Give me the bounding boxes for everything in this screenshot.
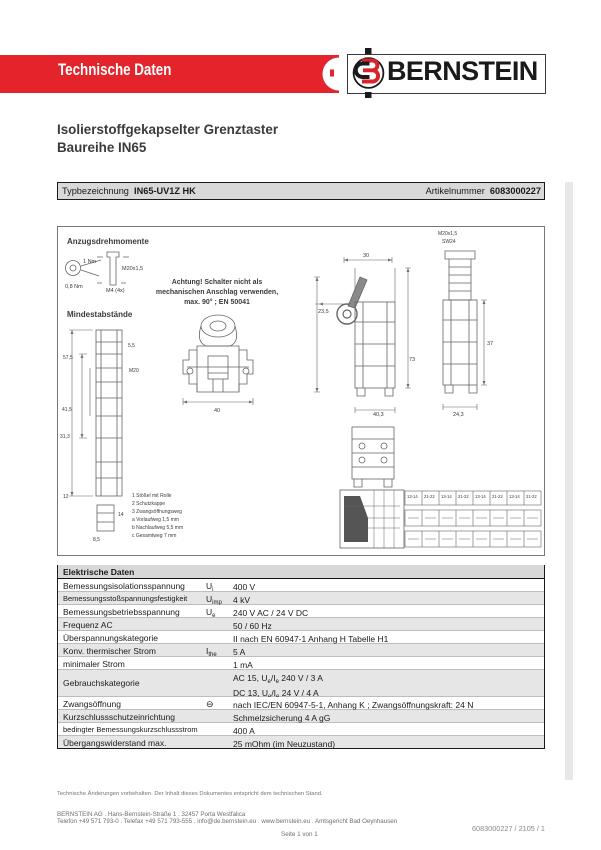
svg-text:57,5: 57,5 — [63, 355, 73, 361]
svg-text:30: 30 — [363, 253, 369, 259]
svg-text:0,8 Nm: 0,8 Nm — [65, 284, 83, 290]
svg-text:1 Nm: 1 Nm — [83, 259, 97, 265]
svg-text:31,3: 31,3 — [60, 434, 70, 440]
svg-text:2 Schutzkappe: 2 Schutzkappe — [132, 501, 165, 507]
svg-text:14: 14 — [118, 512, 124, 518]
svg-text:M20: M20 — [129, 368, 139, 374]
svg-text:b Nachlaufweg 5,5 mm: b Nachlaufweg 5,5 mm — [132, 525, 183, 531]
svg-text:max. 90° ; EN 50041: max. 90° ; EN 50041 — [184, 298, 250, 306]
svg-text:13-14: 13-14 — [475, 494, 486, 499]
svg-text:SW24: SW24 — [442, 239, 456, 245]
svg-text:8,5: 8,5 — [93, 537, 100, 543]
svg-text:3 Zwangsöffnungsweg: 3 Zwangsöffnungsweg — [132, 509, 182, 515]
svg-text:a Vorlaufweg 1,5 mm: a Vorlaufweg 1,5 mm — [132, 517, 179, 523]
svg-text:40: 40 — [214, 408, 220, 414]
svg-text:21-22: 21-22 — [526, 494, 537, 499]
svg-text:21-22: 21-22 — [458, 494, 469, 499]
svg-text:1 Stößel mit Rolle: 1 Stößel mit Rolle — [132, 493, 172, 499]
svg-text:41,5: 41,5 — [62, 407, 72, 413]
svg-text:Anzugsdrehmomente: Anzugsdrehmomente — [67, 237, 149, 246]
svg-text:5,5: 5,5 — [128, 343, 135, 349]
svg-text:21-22: 21-22 — [424, 494, 435, 499]
svg-text:13-14: 13-14 — [407, 494, 418, 499]
svg-text:Mindestabstände: Mindestabstände — [67, 310, 133, 319]
svg-text:Achtung! Schalter nicht als: Achtung! Schalter nicht als — [172, 279, 263, 286]
svg-text:M20x1,5: M20x1,5 — [122, 266, 143, 272]
svg-text:21-22: 21-22 — [492, 494, 503, 499]
svg-text:23,5: 23,5 — [318, 309, 329, 315]
svg-text:c Gesamtweg 7 mm: c Gesamtweg 7 mm — [132, 533, 176, 539]
svg-text:mechanischen Anschlag verwende: mechanischen Anschlag verwenden, — [156, 289, 278, 296]
svg-text:12: 12 — [63, 494, 69, 500]
svg-text:37: 37 — [487, 341, 493, 347]
svg-text:24,3: 24,3 — [453, 412, 464, 418]
svg-text:M20x1,5: M20x1,5 — [438, 231, 457, 237]
svg-text:M4 (4x): M4 (4x) — [106, 288, 125, 294]
svg-text:13-14: 13-14 — [441, 494, 452, 499]
svg-text:13-14: 13-14 — [509, 494, 520, 499]
svg-text:40,3: 40,3 — [373, 412, 384, 418]
svg-text:73: 73 — [409, 357, 415, 363]
